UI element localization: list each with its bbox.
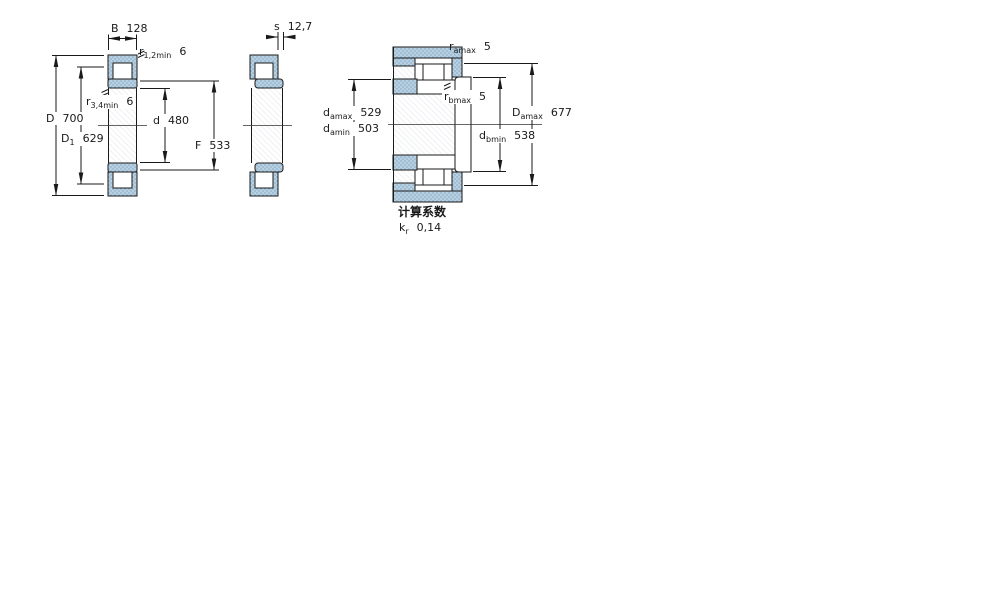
roller-bottom [113,172,132,188]
flange-right-top [444,64,452,80]
inner-ring-top [255,79,283,88]
housing-step-top [393,58,415,66]
dim-label-rbmax: rbmax5 [442,90,488,104]
dim-label-D1: D1629 [59,132,106,146]
flange-right-bottom [444,169,452,185]
dim-label-damax: damax529 [321,106,383,120]
dim-label-d: d480 [151,114,191,127]
roller-bottom [423,169,444,185]
inner-ring-bottom [255,163,283,172]
inner-ring-top [108,79,137,88]
dim-label-Damax: Damax677 [510,106,574,120]
dimension-lines-middle [266,32,296,50]
dim-label-ramax: ramax5 [449,40,491,54]
dim-label-damin: damin503 [321,122,381,136]
dim-label-r12min: r1,2min6 [139,45,186,59]
housing-bottom [393,191,462,202]
shaft-shoulder-bottom [393,155,417,170]
calculation-factors-heading: 计算系数 [398,206,446,219]
dim-label-r34min: r3,4min6 [84,95,135,109]
inner-ring-bottom [417,155,455,169]
roller-top [423,64,444,80]
roller-top [113,63,132,79]
drawing-linework [0,0,1000,600]
dim-label-B: B128 [111,22,148,36]
roller-bottom [255,172,273,188]
outer-ring-top [415,58,452,64]
factor-label-kr: kr0,14 [399,221,441,235]
housing-step-bottom [393,183,415,191]
flange-left-bottom [415,169,423,185]
dim-label-F: F533 [193,139,232,152]
roller-top [255,63,273,79]
shaft-shoulder-top [393,79,417,94]
bearing-dimension-drawing: B128 r1,2min6 r3,4min6 D700 D1629 d480 F… [0,0,1000,600]
dim-label-s: s12,7 [274,20,312,33]
dim-label-D: D700 [44,112,85,125]
dim-label-dbmin: dbmin538 [477,129,537,143]
flange-left-top [415,64,423,80]
outer-ring-bottom [415,185,452,191]
inner-ring-bottom [108,163,137,172]
axial-displacement-view [243,32,296,196]
